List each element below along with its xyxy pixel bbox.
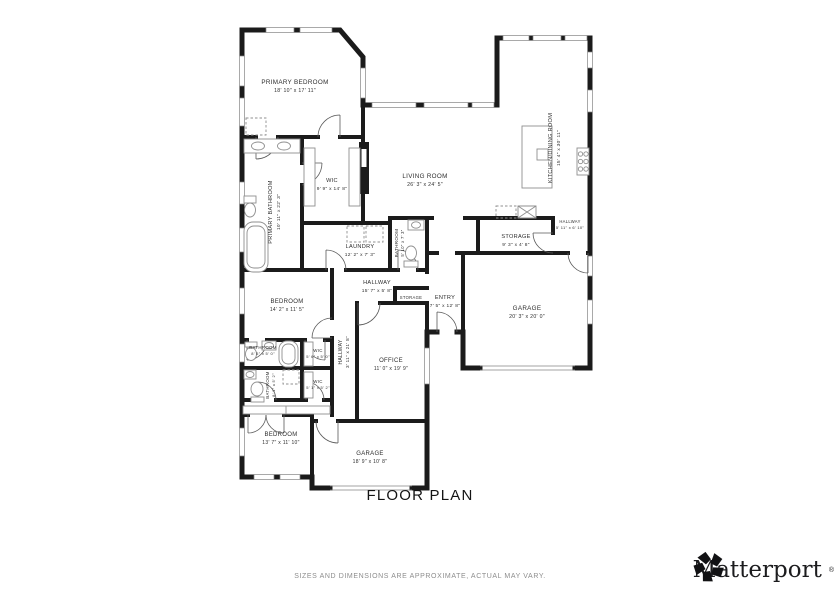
room-label-storage-name: STORAGE bbox=[501, 234, 530, 240]
room-label-laundry-name: LAUNDRY bbox=[346, 244, 375, 250]
room-label-laundry-dims: 12' 2" x 7' 3" bbox=[345, 252, 376, 258]
room-label-bathroom-3-dims: 8' 1" x 5' 2" bbox=[271, 373, 276, 397]
window bbox=[503, 36, 529, 41]
floor-plan-drawing: PRIMARY BEDROOM 18' 10" x 17' 11" WIC 9'… bbox=[0, 0, 840, 594]
room-label-garage-2-dims: 18' 9" x 10' 8" bbox=[353, 459, 388, 465]
matterport-logo: Matterport ® bbox=[693, 551, 834, 589]
burner bbox=[578, 152, 582, 156]
door-arc bbox=[318, 115, 340, 137]
toilet bbox=[245, 203, 256, 217]
room-label-office-name: OFFICE bbox=[379, 358, 403, 364]
door-arc bbox=[568, 253, 588, 273]
door-arc bbox=[266, 415, 284, 433]
room-label-primary-wic-dims: 9' 9" x 14' 8" bbox=[317, 186, 348, 192]
room-label-kitchen-hallway-name: HALLWAY bbox=[559, 219, 580, 224]
room-label-long-hallway-dims: 3' 11" x 21' 8" bbox=[345, 336, 350, 368]
room-label-kitchen-dining-dims: 15' 4" x 30' 11" bbox=[556, 130, 562, 166]
island-sink bbox=[537, 149, 548, 160]
window bbox=[533, 36, 561, 41]
walls bbox=[242, 30, 590, 488]
window bbox=[240, 428, 245, 456]
window bbox=[240, 56, 245, 86]
room-label-primary-bedroom-dims: 18' 10" x 17' 11" bbox=[274, 88, 316, 94]
burner bbox=[584, 167, 588, 171]
room-label-primary-bathroom-name: PRIMARY BATHROOM bbox=[268, 180, 274, 244]
sink bbox=[412, 222, 421, 228]
washer bbox=[347, 226, 364, 242]
window bbox=[240, 288, 245, 314]
shower bbox=[283, 370, 299, 384]
sink bbox=[252, 142, 265, 150]
burner bbox=[584, 152, 588, 156]
window bbox=[588, 300, 593, 324]
dryer bbox=[366, 226, 383, 242]
door-arc bbox=[312, 318, 332, 338]
toilet bbox=[251, 382, 263, 396]
window bbox=[588, 90, 593, 112]
room-label-entry-name: ENTRY bbox=[435, 295, 455, 301]
window bbox=[361, 68, 366, 98]
room-label-wic-2-dims: 5' 6" x 5' 0" bbox=[306, 354, 330, 359]
room-label-hall-bathroom-name: BATHROOM bbox=[394, 229, 399, 258]
room-label-storage-dims: 9' 3" x 4' 8" bbox=[502, 242, 530, 248]
toilet-tank bbox=[251, 397, 264, 402]
bathtub-inner bbox=[247, 226, 265, 268]
room-label-bathroom-2-dims: 8' 5" x 5' 0" bbox=[251, 351, 275, 356]
room-label-kitchen-dining-name: KITCHEN/DINING ROOM bbox=[548, 113, 554, 183]
window bbox=[424, 103, 468, 108]
window bbox=[588, 52, 593, 68]
toilet-tank bbox=[244, 196, 256, 203]
room-label-garage-dims: 20' 3" x 20' 0" bbox=[509, 314, 545, 320]
room-label-middle-bedroom-name: BEDROOM bbox=[270, 299, 303, 305]
room-label-middle-bedroom-dims: 14' 2" x 11' 5" bbox=[270, 307, 304, 313]
matterport-trademark: ® bbox=[829, 567, 834, 574]
window bbox=[240, 344, 245, 362]
toilet bbox=[406, 246, 417, 260]
room-label-main-hallway-name: HALLWAY bbox=[363, 280, 391, 286]
door-arc bbox=[358, 303, 380, 325]
sink bbox=[278, 142, 291, 150]
room-label-bathroom-2-name: BATHROOM bbox=[249, 345, 276, 350]
room-label-bathroom-3-name: BATHROOM bbox=[265, 371, 270, 398]
door-arc bbox=[437, 312, 457, 332]
burner bbox=[584, 159, 588, 163]
room-label-bedroom-3-dims: 13' 7" x 11' 10" bbox=[262, 440, 299, 446]
toilet-tank bbox=[404, 261, 418, 267]
room-label-hall-bathroom-dims: 5' 10" x 7' 3" bbox=[400, 229, 405, 256]
door-arc bbox=[326, 250, 346, 270]
room-label-long-hallway-name: HALLWAY bbox=[338, 339, 344, 364]
room-label-entry-storage-name: STORAGE bbox=[400, 295, 423, 300]
door-arc bbox=[316, 421, 338, 443]
sink bbox=[246, 372, 254, 378]
room-label-entry-dims: 7' 5" x 12' 8" bbox=[430, 303, 461, 309]
window bbox=[472, 103, 494, 108]
window bbox=[280, 475, 300, 480]
burner bbox=[578, 167, 582, 171]
burner bbox=[578, 159, 582, 163]
room-label-wic-2-name: WIC bbox=[313, 348, 322, 353]
room-label-primary-bedroom-name: PRIMARY BEDROOM bbox=[261, 79, 328, 86]
window bbox=[254, 475, 274, 480]
room-label-garage-2-name: GARAGE bbox=[356, 451, 383, 457]
room-label-kitchen-hallway-dims: 5' 11" x 6' 10" bbox=[556, 225, 585, 230]
matterport-pinwheel-icon bbox=[693, 551, 725, 583]
room-label-wic-3-name: WIC bbox=[313, 379, 322, 384]
bathtub-inner bbox=[282, 344, 295, 364]
window bbox=[300, 28, 332, 33]
pantry-shelves bbox=[518, 206, 536, 218]
window bbox=[565, 36, 587, 41]
shower bbox=[246, 118, 266, 135]
window bbox=[266, 28, 294, 33]
closet bbox=[243, 406, 330, 414]
room-label-garage-name: GARAGE bbox=[513, 305, 542, 312]
door-arc bbox=[248, 415, 266, 433]
page-title: FLOOR PLAN bbox=[0, 487, 840, 504]
window bbox=[240, 98, 245, 126]
room-label-primary-wic-name: WIC bbox=[326, 178, 338, 184]
room-label-living-room-name: LIVING ROOM bbox=[402, 173, 447, 180]
floor-plan-page: PRIMARY BEDROOM 18' 10" x 17' 11" WIC 9'… bbox=[0, 0, 840, 594]
room-label-bedroom-3-name: BEDROOM bbox=[264, 432, 297, 438]
room-label-main-hallway-dims: 15' 7" x 5' 8" bbox=[362, 288, 393, 294]
room-label-wic-3-dims: 5' 1" x 5' 2" bbox=[306, 385, 330, 390]
closet-rod bbox=[349, 148, 360, 206]
room-label-living-room-dims: 26' 3" x 24' 5" bbox=[407, 182, 443, 188]
door-arc bbox=[533, 233, 553, 253]
window bbox=[425, 348, 430, 384]
closet-rod bbox=[304, 148, 315, 206]
window bbox=[372, 103, 416, 108]
media-wall-niche bbox=[362, 149, 367, 167]
room-label-primary-bathroom-dims: 10' 11" x 22' 3" bbox=[276, 194, 282, 230]
room-label-office-dims: 11' 0" x 19' 9" bbox=[374, 366, 408, 372]
